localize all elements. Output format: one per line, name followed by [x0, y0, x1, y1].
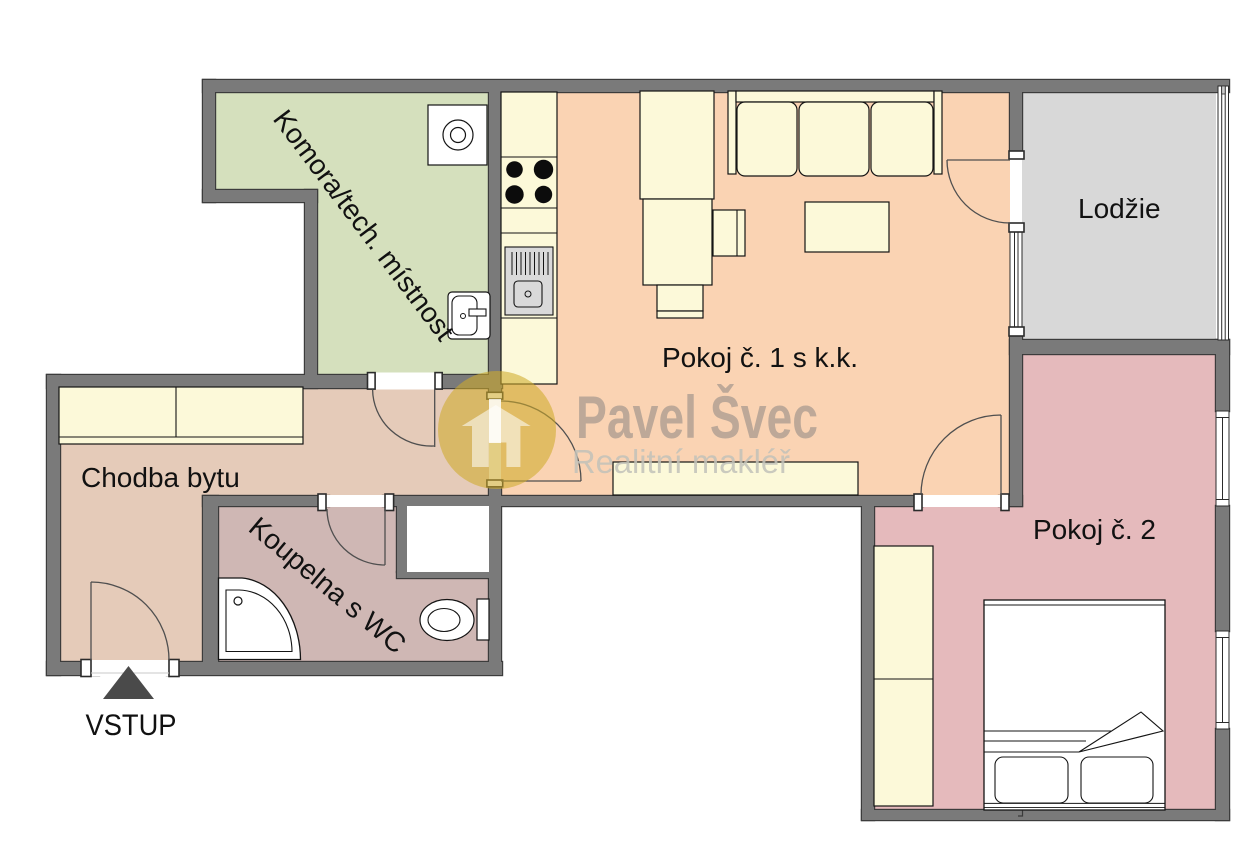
- svg-text:Chodba bytu: Chodba bytu: [81, 462, 240, 493]
- svg-text:VSTUP: VSTUP: [86, 709, 177, 742]
- svg-text:Realitní makléř: Realitní makléř: [572, 443, 791, 480]
- svg-text:Pokoj č. 1 s k.k.: Pokoj č. 1 s k.k.: [662, 342, 858, 373]
- svg-text:Lodžie: Lodžie: [1078, 193, 1161, 224]
- svg-text:Pokoj č. 2: Pokoj č. 2: [1033, 514, 1156, 545]
- svg-text:Pavel Švec: Pavel Švec: [576, 384, 818, 451]
